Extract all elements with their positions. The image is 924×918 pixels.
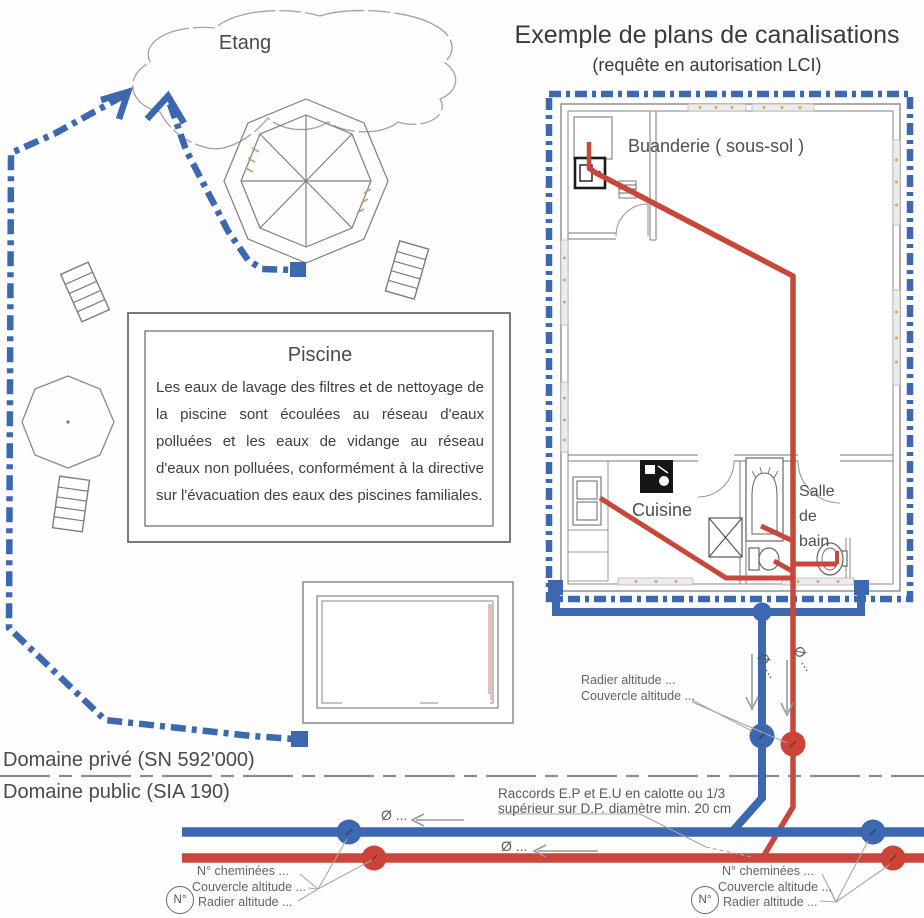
toilet-icon <box>749 548 779 570</box>
diameter-label: Ø ... <box>381 807 407 824</box>
pool-box-title: Piscine <box>150 343 490 367</box>
lounger-icon <box>385 241 428 299</box>
chimney-number-badge: N° <box>691 886 719 914</box>
pavilion-octagon <box>224 99 388 263</box>
domain-public-label: Domaine public (SIA 190) <box>3 780 230 804</box>
bath-line: Salle <box>799 480 835 505</box>
room-label-buanderie: Buanderie ( sous-sol ) <box>628 136 804 158</box>
raccords-note-line1: Raccords E.P et E.U en calotte ou 1/3 <box>498 786 725 802</box>
cover-altitude-label: Couvercle altitude ... <box>718 880 832 895</box>
cover-altitude-label: Couvercle altitude ... <box>192 880 306 895</box>
lounger-icon <box>53 476 90 532</box>
diameter-label: Ø ... <box>501 838 527 855</box>
flow-arrowhead-icon <box>101 92 128 119</box>
invert-altitude-label: Radier altitude ... <box>198 895 293 910</box>
chimney-number-label: N° cheminées ... <box>722 864 814 879</box>
invert-altitude-label: Radier altitude ... <box>723 895 818 910</box>
garden-table-icon <box>22 376 114 468</box>
stove-icon <box>640 460 673 493</box>
kitchen-sink-icon <box>573 477 601 525</box>
garage-outline <box>303 582 513 723</box>
radier-altitude-label: Radier altitude ... <box>581 673 676 688</box>
domain-private-label: Domaine privé (SN 592'000) <box>3 748 255 772</box>
room-label-salle-de-bain: Salle de bain <box>799 480 835 554</box>
chimney-number-badge: N° <box>166 886 194 914</box>
raccords-note-line2: supérieur sur D.P. diamètre min. 20 cm <box>498 801 731 817</box>
couvercle-altitude-label: Couvercle altitude ... <box>581 689 695 704</box>
canalisation-plan: Exemple de plans de canalisations (requê… <box>0 0 924 918</box>
room-label-cuisine: Cuisine <box>632 500 692 522</box>
bath-line: bain <box>799 530 835 555</box>
page-subtitle: (requête en autorisation LCI) <box>490 55 924 77</box>
lounger-icon <box>61 262 110 322</box>
bath-line: de <box>799 505 835 530</box>
flow-arrowhead-icon <box>147 96 184 123</box>
page-title: Exemple de plans de canalisations <box>490 20 924 50</box>
pond-label: Etang <box>185 31 305 55</box>
utility-basin-icon <box>709 518 742 557</box>
chimney-number-label: N° cheminées ... <box>197 864 289 879</box>
pool-box-text: Les eaux de lavage des filtres et de net… <box>156 374 484 509</box>
